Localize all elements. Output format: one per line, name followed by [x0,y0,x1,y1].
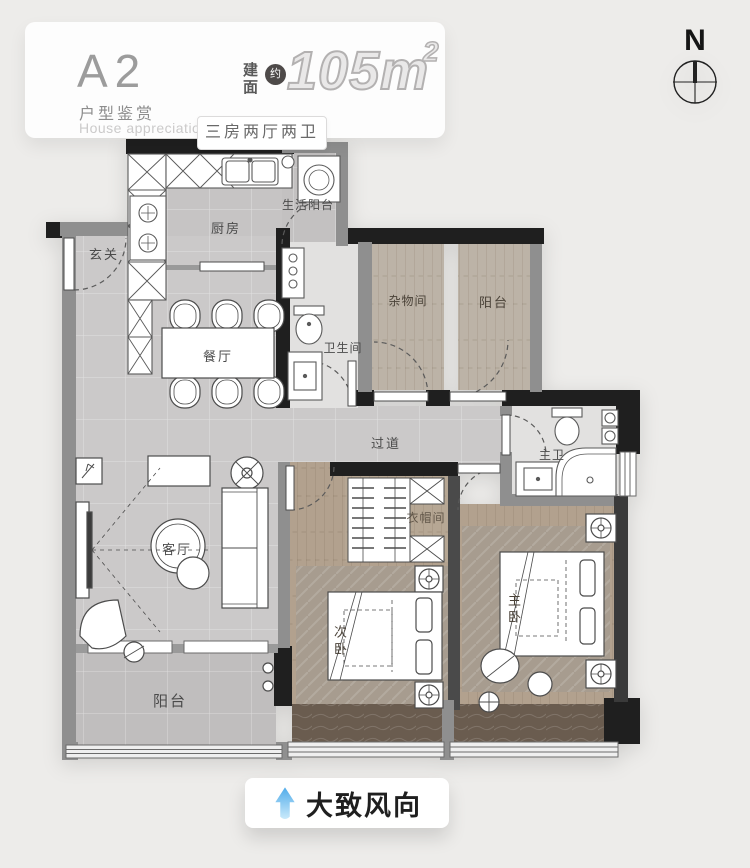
label-balcony-ne: 阳台 [464,292,524,311]
approx-badge: 约 [265,64,286,85]
area-label-line2: 面 [243,79,258,96]
label-bedroom-second: 次卧 [330,612,349,672]
unit-subtitle-en: House appreciation [79,120,209,136]
wind-direction-badge: 大致风向 [245,778,449,828]
compass-north-label: N [672,26,718,56]
area-exponent: 2 [423,36,439,68]
label-bathroom: 卫生间 [303,339,383,356]
label-storage: 杂物间 [368,292,448,309]
label-entry: 玄关 [74,244,134,263]
wind-direction-label: 大致风向 [306,784,422,823]
label-closet: 衣帽间 [386,509,466,526]
header-card: A2 户型鉴赏 House appreciation 建 面 约 105m 2 … [25,22,445,138]
floorplan-page: A2 户型鉴赏 House appreciation 建 面 约 105m 2 … [0,0,750,868]
label-bedroom-master: 主卧 [504,580,523,640]
label-service-balcony: 生活阳台 [266,196,350,213]
area-label-line1: 建 [243,62,258,79]
area-label: 建 面 [243,62,258,96]
label-balcony-sw: 阳台 [140,690,200,711]
label-master-bath: 主卫 [522,446,582,463]
label-corridor: 过道 [356,433,416,452]
label-kitchen: 厨房 [196,218,256,237]
layout-spec-box: 三房两厅两卫 [197,116,327,150]
area-value: 105m [287,44,429,98]
compass-icon [673,61,717,103]
label-dining: 餐厅 [188,346,248,365]
wind-up-arrow-icon [272,784,298,822]
label-living: 客厅 [147,539,207,558]
unit-code: A2 [77,48,147,94]
